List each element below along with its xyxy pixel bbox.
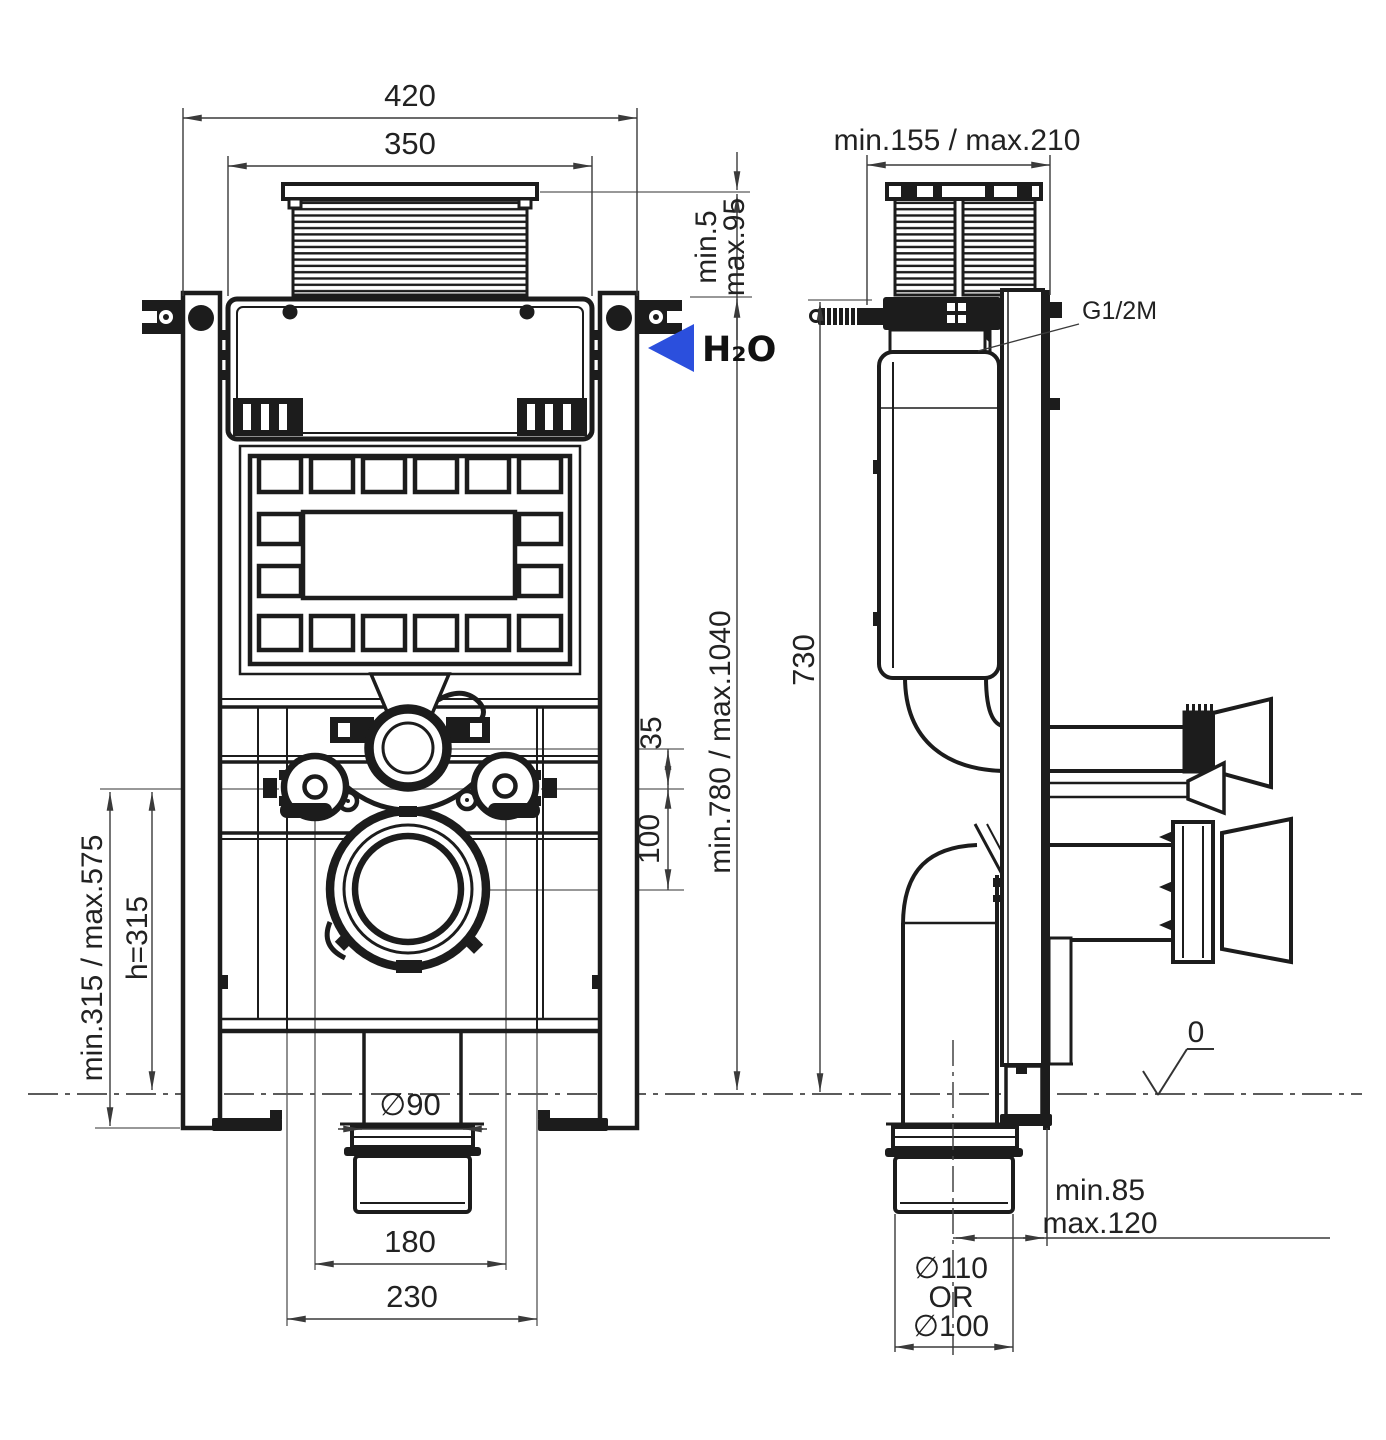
label-bolt-spacing: 180 bbox=[384, 1224, 436, 1259]
wall-bracket-left bbox=[142, 300, 185, 334]
label-wall-offset-max: max.120 bbox=[1042, 1207, 1157, 1240]
water-label: H₂O bbox=[702, 330, 776, 370]
mounting-plate bbox=[240, 446, 580, 674]
label-floor-level: 0 bbox=[1188, 1016, 1205, 1049]
side-view bbox=[811, 184, 1292, 1355]
flush-connector-side bbox=[1049, 819, 1291, 962]
flush-access-shaft bbox=[283, 184, 537, 297]
installation-drawing: H₂O 420 350 min.5 max.95 min.780 / max.1… bbox=[0, 0, 1386, 1440]
label-cistern-width: 350 bbox=[384, 126, 436, 161]
label-wall-offset-min: min.85 bbox=[1055, 1174, 1145, 1207]
connector-cone bbox=[1222, 819, 1291, 962]
floor-datum-icon bbox=[1143, 1049, 1214, 1095]
mounting-bolt-right bbox=[474, 755, 557, 818]
label-shaft-max: max.95 bbox=[718, 198, 751, 296]
wall-bracket-right bbox=[637, 300, 682, 334]
label-waste-offset: 100 bbox=[633, 814, 666, 864]
label-bolt-height: h=315 bbox=[121, 896, 154, 980]
flush-access-shaft-side bbox=[887, 184, 1041, 295]
label-depth-range: min.155 / max.210 bbox=[834, 124, 1081, 157]
cistern-side bbox=[873, 330, 999, 678]
cistern-front bbox=[228, 299, 592, 439]
outlet-pipe-side bbox=[885, 1124, 1023, 1212]
label-height-range: min.780 / max.1040 bbox=[704, 610, 737, 873]
technical-drawing-page: H₂O 420 350 min.5 max.95 min.780 / max.1… bbox=[0, 0, 1386, 1440]
label-flush-offset: 35 bbox=[635, 716, 668, 749]
label-outlet-d2: ∅100 bbox=[913, 1310, 989, 1343]
rail-bolt-left bbox=[188, 305, 214, 331]
label-channel-spacing: 230 bbox=[386, 1279, 438, 1314]
front-view bbox=[142, 184, 682, 1326]
waste-outlet-front bbox=[327, 806, 486, 973]
rail-bolt-right bbox=[606, 305, 632, 331]
label-overall-width: 420 bbox=[384, 78, 436, 113]
label-bolt-height-range: min.315 / max.575 bbox=[76, 835, 109, 1082]
mounting-bolt-left bbox=[263, 756, 346, 818]
label-outlet-diameter: ∅90 bbox=[379, 1087, 441, 1122]
label-frame-height: 730 bbox=[786, 634, 821, 686]
label-inlet-thread: G1/2M bbox=[1082, 297, 1157, 325]
outlet-pipe-front bbox=[340, 1032, 484, 1212]
